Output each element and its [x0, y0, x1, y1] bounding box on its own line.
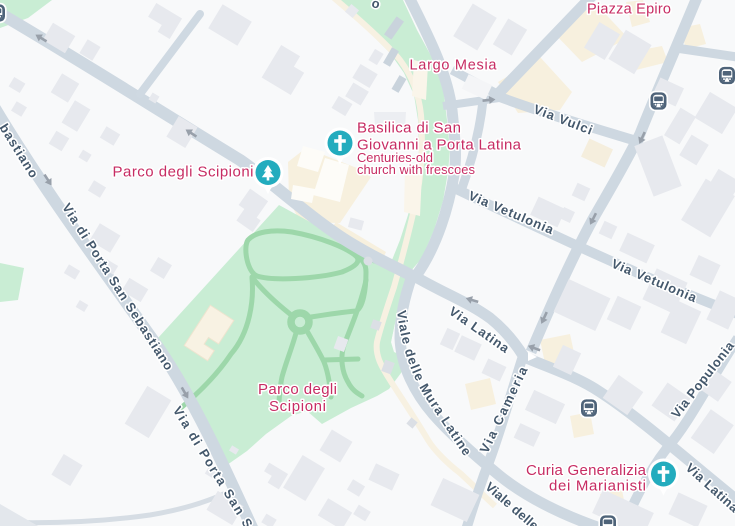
svg-text:Scipioni: Scipioni	[269, 398, 326, 415]
svg-text:Largo Mesia: Largo Mesia	[410, 58, 498, 74]
svg-text:Basilica di San: Basilica di San	[357, 120, 461, 137]
svg-text:Parco degli Scipioni: Parco degli Scipioni	[113, 164, 254, 181]
svg-text:Piazza Epiro: Piazza Epiro	[587, 2, 671, 18]
svg-text:dei Marianisti: dei Marianisti	[549, 478, 646, 495]
svg-text:Curia Generalizia: Curia Generalizia	[526, 462, 647, 479]
svg-text:Parco degli: Parco degli	[258, 381, 337, 398]
svg-text:church with frescoes: church with frescoes	[357, 162, 476, 177]
